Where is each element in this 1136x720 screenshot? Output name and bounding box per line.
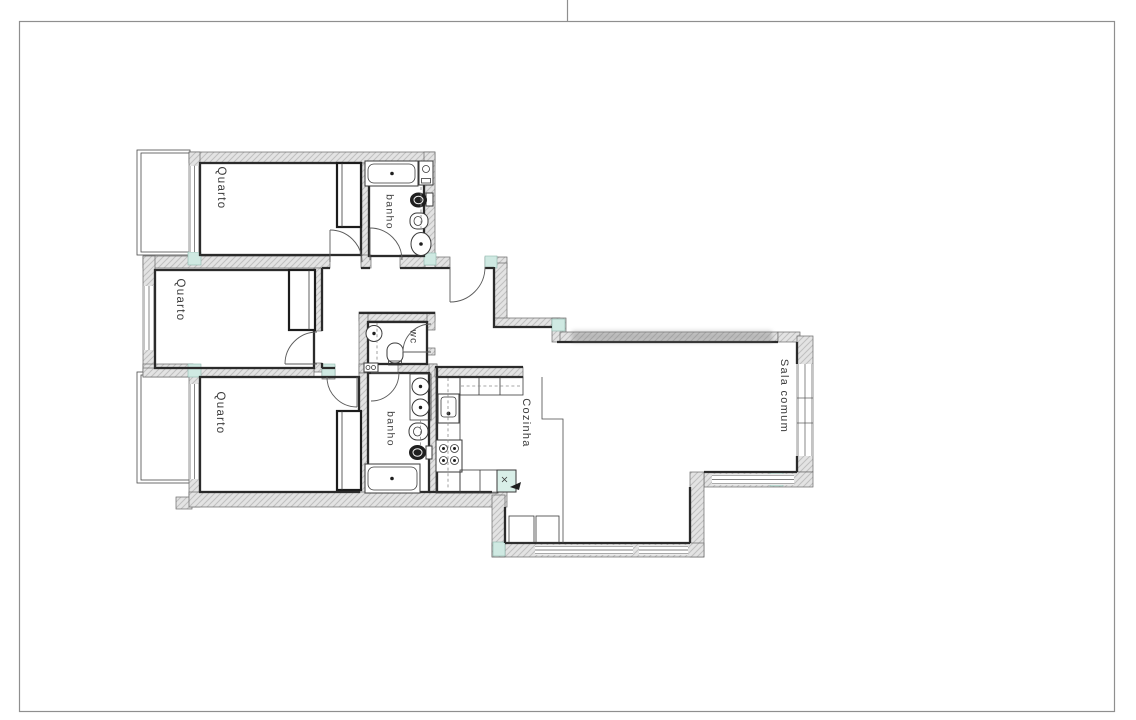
banho-2-fixtures	[365, 374, 432, 493]
window-lower-bay-1	[535, 545, 633, 555]
door-banho-2	[371, 373, 399, 401]
room-label-wc: wc	[408, 329, 419, 345]
wardrobe-quarto-2	[289, 270, 315, 330]
wardrobe-quarto-1	[337, 163, 361, 227]
banho-1-fixtures	[365, 161, 433, 256]
toilet-banho-1	[411, 193, 434, 207]
entrance-door	[450, 267, 485, 302]
room-label-sala-comum: Sala comum	[778, 359, 790, 433]
toilet-wc	[387, 343, 403, 365]
door-quarto-1	[330, 230, 362, 262]
balcony-bottom-left	[137, 372, 190, 483]
room-label-quarto-3: Quarto	[214, 392, 226, 435]
bathtub-banho-1	[365, 161, 418, 186]
kitchen-counter-bottom	[460, 470, 498, 493]
window-sala-bottom	[712, 474, 794, 485]
bidet-banho-2	[409, 423, 428, 440]
room-label-quarto-1: Quarto	[215, 167, 227, 210]
watermark-smudge	[572, 331, 772, 342]
balcony-top-left	[137, 150, 190, 255]
window-quarto-1	[189, 166, 200, 252]
wardrobes	[289, 163, 361, 490]
stove	[436, 440, 462, 472]
kitchen-zone-boundary	[542, 377, 563, 543]
window-quarto-3	[189, 384, 200, 479]
window-sala-right	[797, 364, 813, 456]
bidet-banho-1	[410, 213, 428, 229]
floor-plan-page: Quarto Quarto Quarto banho wc banho Cozi…	[0, 0, 1136, 720]
walls	[143, 152, 813, 557]
dishwasher-unit	[497, 470, 521, 492]
sink-wc	[366, 326, 382, 342]
wardrobe-quarto-3	[337, 411, 361, 490]
sink-banho-1	[411, 233, 431, 256]
room-label-banho-2: banho	[384, 411, 396, 447]
washbasin-column-banho-1	[419, 161, 433, 185]
room-label-quarto-2: Quarto	[174, 279, 186, 322]
room-label-banho-1: banho	[383, 194, 395, 230]
bathtub-banho-2	[365, 464, 420, 493]
kitchen-sink	[438, 394, 459, 423]
laundry-appliances	[509, 516, 559, 543]
room-labels: Quarto Quarto Quarto banho wc banho Cozi…	[174, 167, 790, 448]
window-lower-bay-2	[639, 545, 688, 555]
door-quarto-2	[285, 332, 317, 364]
door-quarto-3	[327, 377, 357, 407]
utility-box-wc	[364, 363, 378, 372]
floor-plan-svg: Quarto Quarto Quarto banho wc banho Cozi…	[0, 0, 1136, 720]
toilet-banho-2	[410, 446, 433, 460]
room-label-cozinha: Cozinha	[520, 398, 532, 447]
window-quarto-2	[143, 286, 155, 350]
